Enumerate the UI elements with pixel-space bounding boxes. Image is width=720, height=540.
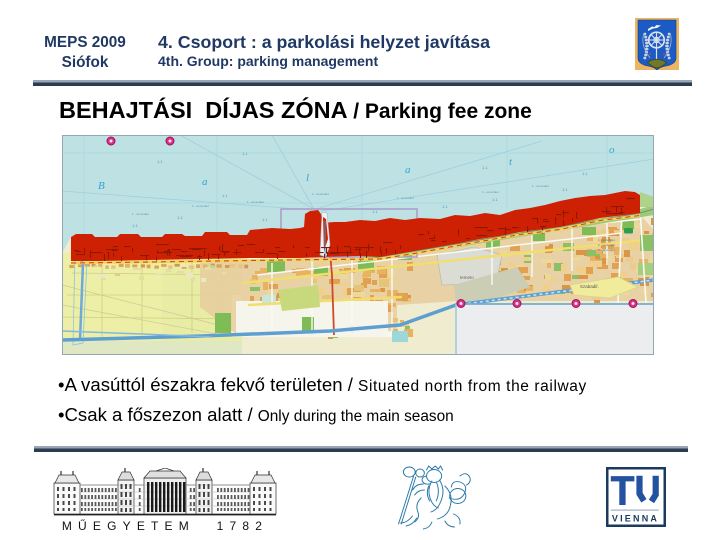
svg-text:1.1: 1.1 — [562, 187, 568, 192]
svg-text:1.1: 1.1 — [132, 223, 138, 228]
svg-text:1.1: 1.1 — [482, 165, 488, 170]
svg-text:temeto: temeto — [460, 275, 474, 280]
svg-text:Szabadif.: Szabadif. — [580, 284, 599, 289]
svg-text:1 - es terulet: 1 - es terulet — [482, 190, 499, 194]
svg-text:1.1: 1.1 — [222, 193, 228, 198]
svg-text:l: l — [306, 172, 309, 184]
svg-text:B: B — [98, 180, 105, 192]
svg-text:1.1: 1.1 — [157, 159, 163, 164]
svg-text:1 - es terulet: 1 - es terulet — [312, 192, 329, 196]
svg-text:1 - es terulet: 1 - es terulet — [397, 196, 414, 200]
svg-text:1 - es terulet: 1 - es terulet — [598, 238, 615, 242]
svg-text:2 - es terulet: 2 - es terulet — [598, 243, 615, 247]
svg-text:1.1: 1.1 — [262, 217, 268, 222]
svg-text:1.1: 1.1 — [492, 197, 498, 202]
svg-text:o: o — [609, 144, 615, 156]
svg-text:1.1: 1.1 — [177, 215, 183, 220]
svg-text:VIENNA: VIENNA — [611, 514, 658, 524]
svg-text:1 - es terulet: 1 - es terulet — [192, 204, 209, 208]
svg-text:1 - es terulet: 1 - es terulet — [532, 184, 549, 188]
svg-text:3 - as terulet: 3 - as terulet — [598, 248, 615, 252]
svg-text:1 - es terulet: 1 - es terulet — [132, 212, 149, 216]
svg-text:MŰEGYETEM 1782: MŰEGYETEM 1782 — [62, 518, 268, 533]
svg-text:a: a — [405, 164, 411, 176]
svg-text:1.1: 1.1 — [582, 171, 588, 176]
svg-text:1 - es terulet: 1 - es terulet — [247, 200, 264, 204]
svg-text:1.1: 1.1 — [442, 204, 448, 209]
svg-text:1.1: 1.1 — [242, 151, 248, 156]
svg-text:a: a — [202, 176, 208, 188]
